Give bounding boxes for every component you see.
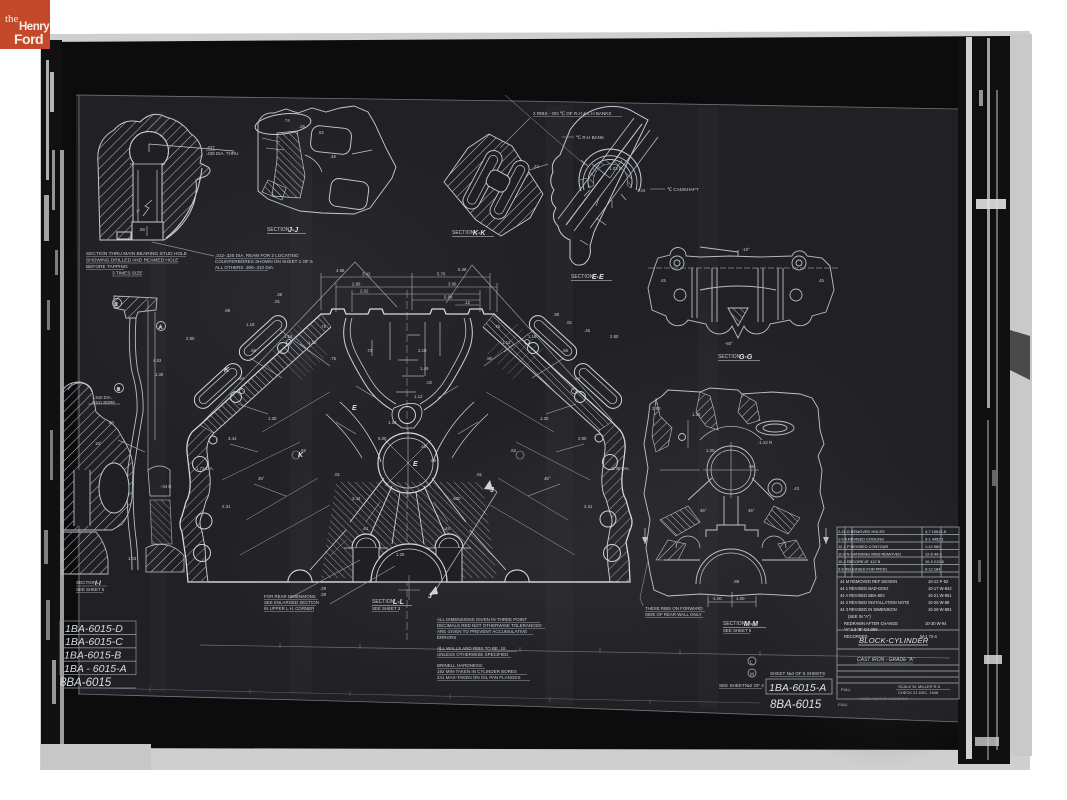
svg-text:SEE SHEET 5: SEE SHEET 5 [723,628,752,633]
svg-text:1.12: 1.12 [308,340,317,345]
svg-text:.44: .44 [362,526,369,531]
svg-text:DECIMALS RED NOT OTHERWISE: DECIMALS RED NOT OTHERWISE TOLERANCED [437,623,542,628]
svg-text:.29: .29 [320,586,327,591]
svg-text:44 2 REVISED INSTALLATION: 44 2 REVISED INSTALLATION NOTE [840,600,910,605]
svg-text:SCALE W. MILLER R.S.: SCALE W. MILLER R.S. [898,684,941,689]
svg-text:BEFORE TAPPING: BEFORE TAPPING [86,264,128,270]
svg-text:1BA-6015-B: 1BA-6015-B [64,650,121,662]
svg-text:1.00: 1.00 [706,448,715,453]
svg-text:℃ R.H BANK: ℃ R.H BANK [576,135,605,140]
svg-text:1.49: 1.49 [420,366,429,371]
svg-text:2.31: 2.31 [222,504,231,509]
svg-text:2.80: 2.80 [610,334,619,339]
svg-text:G-G: G-G [739,354,753,361]
svg-text:“A” 2.3 “B” G4.000: “A” 2.3 “B” G4.000 [844,627,878,632]
svg-text:SECTION: SECTION [452,230,475,236]
svg-text:.25: .25 [299,124,305,129]
svg-text:E: E [413,461,418,468]
svg-text:10-12 P-52: 10-12 P-52 [928,579,949,584]
svg-text:SEE SHEET№2 OF 4: SEE SHEET№2 OF 4 [719,683,764,688]
svg-text:1.18: 1.18 [246,322,255,327]
svg-text:1.12: 1.12 [502,340,511,345]
svg-text:1BA - 6015-A: 1BA - 6015-A [64,663,127,675]
svg-text:1BA-6015-D: 1BA-6015-D [65,623,123,635]
svg-text:1BA-6015-C: 1BA-6015-C [65,636,123,648]
svg-text:SECTION: SECTION [267,227,290,233]
svg-text:3.86: 3.86 [448,282,457,287]
svg-text:.23: .23 [533,164,539,169]
svg-text:CHECK 21 DEC. 1948: CHECK 21 DEC. 1948 [898,690,939,695]
svg-text:℃ CAMSHAFT: ℃ CAMSHAFT [667,187,699,192]
svg-text:1.38 DIA.: 1.38 DIA. [612,466,630,471]
svg-text:J-J: J-J [288,227,299,234]
svg-text:FULL: FULL [838,702,848,707]
svg-text:M: M [750,672,754,677]
svg-text:.312-.325 DIA. REAM FOR 2 LOCA: .312-.325 DIA. REAM FOR 2 LOCATING [215,253,299,258]
svg-text:E-E: E-E [592,274,604,281]
svg-text:.74: .74 [284,118,290,123]
svg-text:FORD MOTOR COMPANY: FORD MOTOR COMPANY [860,696,909,701]
svg-text:4.83: 4.83 [153,358,162,363]
svg-text:FOR REAR DIMENSIONS: FOR REAR DIMENSIONS [264,594,316,599]
svg-text:SECTION: SECTION [723,621,746,627]
svg-text:SHEET №4 OF 6 SHEETS: SHEET №4 OF 6 SHEETS [770,671,825,676]
svg-text:44 A REVISED BBA-604: 44 A REVISED BBA-604 [840,593,885,598]
svg-text:8BA-6015: 8BA-6015 [60,677,112,689]
svg-text:1.511 BORE: 1.511 BORE [92,400,115,405]
svg-text:.94: .94 [238,376,245,381]
svg-text:SECTION: SECTION [372,599,395,605]
svg-text:-1.03 R: -1.03 R [608,166,622,171]
svg-text:2-11 G REMOVED HOLES: 2-11 G REMOVED HOLES [838,529,885,534]
svg-text:.438 DIA. THRU: .438 DIA. THRU [206,151,238,156]
svg-text:.56: .56 [562,348,569,353]
svg-text:3-1 4452-1: 3-1 4452-1 [925,537,944,542]
svg-text:1.72 DIA.: 1.72 DIA. [196,466,214,471]
svg-text:1.03: 1.03 [128,556,137,561]
svg-text:BLOCK-CYLINDER: BLOCK-CYLINDER [859,636,929,645]
svg-text:1-12 982: 1-12 982 [925,544,940,549]
svg-text:.75: .75 [330,356,337,361]
svg-text:BRINELL HARDNESS:: BRINELL HARDNESS: [437,663,483,668]
svg-text:FULL: FULL [841,687,852,692]
svg-text:.38: .38 [276,292,283,297]
svg-text:.81: .81 [274,299,281,304]
svg-text:2.31: 2.31 [584,504,593,509]
svg-text:45°: 45° [544,476,551,481]
svg-text:.81: .81 [566,320,573,325]
svg-text:.56: .56 [250,348,257,353]
svg-text:3.44: 3.44 [228,436,237,441]
svg-text:CAST IRON - GRADE “A”: CAST IRON - GRADE “A” [857,657,915,663]
svg-text:45°: 45° [748,508,755,513]
svg-text:3.44: 3.44 [352,496,361,501]
svg-text:7°: 7° [136,209,141,214]
svg-text:4.98: 4.98 [336,268,345,273]
svg-text:1.30: 1.30 [540,416,549,421]
svg-text:10-21 W-861: 10-21 W-861 [928,593,952,598]
svg-text:2.80: 2.80 [652,406,661,411]
svg-text:ERRORS: ERRORS [437,635,456,640]
svg-text:5.00: 5.00 [378,436,387,441]
svg-text:1.44: 1.44 [637,188,646,193]
svg-text:.62: .62 [510,448,517,453]
svg-text:3 TIMES SIZE: 3 TIMES SIZE [112,271,143,277]
svg-text:.45: .45 [818,278,824,283]
svg-text:.02: .02 [426,380,433,385]
svg-text:L-L: L-L [393,599,404,606]
svg-text:SECTION THRU MAIN BEARING: SECTION THRU MAIN BEARING STUD HOLE [86,251,187,257]
svg-text:.81: .81 [476,472,483,477]
svg-text:4-7 10612-8: 4-7 10612-8 [925,529,946,534]
svg-text:.500: .500 [452,496,461,501]
svg-text:UNLESS OTHERWISE SPECIFIED: UNLESS OTHERWISE SPECIFIED [437,652,509,657]
svg-text:COUNTERBORES SHOWN ON SHEET 1: COUNTERBORES SHOWN ON SHEET 1 OF 6 [215,259,313,264]
svg-text:ARE GIVEN TO PREVENT ACCUMU: ARE GIVEN TO PREVENT ACCUMULATIVE [437,629,527,634]
svg-text:45°: 45° [700,508,707,513]
svg-text:9-12 184: 9-12 184 [925,567,941,572]
svg-text:1.18: 1.18 [388,420,397,425]
svg-text:.88: .88 [733,579,740,584]
svg-text:.437: .437 [206,145,215,150]
svg-text:1.12: 1.12 [414,394,423,399]
svg-text:.94: .94 [574,376,581,381]
svg-text:SECTION: SECTION [718,354,741,360]
svg-text:1.16: 1.16 [284,334,293,339]
svg-text:.06: .06 [748,464,755,469]
svg-text:1.38: 1.38 [155,372,164,377]
svg-text:10-30 W-94: 10-30 W-94 [925,621,947,626]
svg-text:44 3 REVISED IN DIMENSION: 44 3 REVISED IN DIMENSION [840,607,897,612]
svg-text:SECTION: SECTION [76,580,96,585]
svg-text:44 M REMOVED REF DESIGN: 44 M REMOVED REF DESIGN [840,579,897,584]
svg-text:12-6 44-3: 12-6 44-3 [925,552,942,557]
svg-text:SEE SHEET 5: SEE SHEET 5 [76,587,105,592]
svg-text:SIDE OF REAR WALL ONLY: SIDE OF REAR WALL ONLY [645,612,702,617]
svg-text:9-6 RELEASED FOR PROD.: 9-6 RELEASED FOR PROD. [838,567,888,572]
svg-text:11-8 N CATERING RIBS REMOVE: 11-8 N CATERING RIBS REMOVED [838,552,901,557]
svg-text:SHOWING DRILLED AND REAMED: SHOWING DRILLED AND REAMED HOLE [86,258,179,264]
svg-text:.90: .90 [486,356,493,361]
svg-text:IN UPPER L.H. CORNER: IN UPPER L.H. CORNER [264,606,314,611]
svg-text:192 MIN-TAKEN IN CYLINDER: 192 MIN-TAKEN IN CYLINDER BORES [437,669,517,674]
svg-text:1.25: 1.25 [396,552,405,557]
svg-text:.28: .28 [320,592,327,597]
svg-text:.73: .73 [366,348,373,353]
svg-text:1-9 A REVISED COOLING: 1-9 A REVISED COOLING [838,537,884,542]
svg-text:10-17 W-842: 10-17 W-842 [928,586,952,591]
svg-text:1.38: 1.38 [692,412,701,417]
svg-text:SEE SHEET 3: SEE SHEET 3 [372,606,401,611]
svg-text:12-1 P REVISED CONTOUR: 12-1 P REVISED CONTOUR [838,544,888,549]
svg-text:.48: .48 [330,154,336,159]
svg-text:-60°: -60° [725,341,733,346]
svg-text:-1.00: -1.00 [712,596,722,601]
svg-text:44 1 REVISED BAD-GING: 44 1 REVISED BAD-GING [840,586,888,591]
svg-text:.40: .40 [108,420,114,425]
svg-text:8BA-6015: 8BA-6015 [770,699,822,711]
svg-text:.43: .43 [793,486,800,491]
svg-text:1.00-: 1.00- [736,596,746,601]
svg-text:ALL OTHERS .306-.310 DIA.: ALL OTHERS .306-.310 DIA. [215,265,274,270]
svg-text:10-26 W-88: 10-26 W-88 [928,600,950,605]
svg-text:.48: .48 [420,444,427,449]
svg-text:SEE ENLARGED SECTION: SEE ENLARGED SECTION [264,600,319,605]
svg-text:.06: .06 [430,458,437,463]
svg-text:2.80: 2.80 [186,336,195,341]
svg-text:1.30: 1.30 [268,416,277,421]
svg-text:10-28 W-891: 10-28 W-891 [928,607,952,612]
svg-text:10-2 RECORE AT 412 B: 10-2 RECORE AT 412 B [838,559,881,564]
svg-text:2.62: 2.62 [360,289,369,294]
svg-text:.75: .75 [494,324,501,329]
svg-text:-1.22 R: -1.22 R [758,440,772,445]
svg-text:1BA-6015-A: 1BA-6015-A [769,682,826,694]
svg-text:.75: .75 [320,324,327,329]
svg-text:10-9 212-6: 10-9 212-6 [925,559,944,564]
svg-text:2 RIBS - ON ℃ OF R.H & L.H BA: 2 RIBS - ON ℃ OF R.H & L.H BANKS [533,111,611,116]
svg-text:A: A [159,325,162,330]
svg-text:.45: .45 [660,278,666,283]
svg-text:.81: .81 [334,472,341,477]
svg-text:.38: .38 [553,312,560,317]
svg-text:.45: .45 [584,328,591,333]
svg-text:THESE RIBS ON FORWARD: THESE RIBS ON FORWARD [645,606,703,611]
svg-text:(SEE IN “A”): (SEE IN “A”) [848,614,871,619]
svg-text:1.16: 1.16 [528,334,537,339]
svg-text:18°: 18° [95,441,102,446]
svg-text:241 MAX-TAKEN ON OIL PAN: 241 MAX-TAKEN ON OIL PAN FLANGES [437,675,520,680]
svg-text:5.76: 5.76 [437,272,446,277]
svg-text:5.88: 5.88 [444,295,453,300]
svg-text:2.80: 2.80 [578,436,587,441]
svg-text:2.86: 2.86 [352,282,361,287]
svg-text:.52: .52 [318,130,324,135]
svg-text:B: B [117,387,120,392]
svg-text:ALL WALLS AND RIBS TO BE: ALL WALLS AND RIBS TO BE .18 [437,646,506,651]
svg-text:.98: .98 [224,308,231,313]
svg-text:.12: .12 [464,300,471,305]
svg-text:5.38: 5.38 [458,267,467,272]
svg-text:-10°: -10° [742,247,750,252]
svg-text:ALL DIMENSIONS GIVEN IN TH: ALL DIMENSIONS GIVEN IN THREE POINT [437,617,527,622]
svg-text:REDRAWN AFTER CHANGE: REDRAWN AFTER CHANGE [844,621,898,626]
svg-text:2.18: 2.18 [418,348,427,353]
svg-text:SECTION: SECTION [571,274,594,280]
svg-text:45°: 45° [258,476,265,481]
svg-text:.44: .44 [444,526,451,531]
svg-text:E: E [352,405,357,412]
svg-text:M-M: M-M [744,621,758,628]
svg-text:K-K: K-K [473,230,486,237]
svg-text:3.42: 3.42 [362,272,371,277]
svg-text:.58: .58 [139,227,145,232]
